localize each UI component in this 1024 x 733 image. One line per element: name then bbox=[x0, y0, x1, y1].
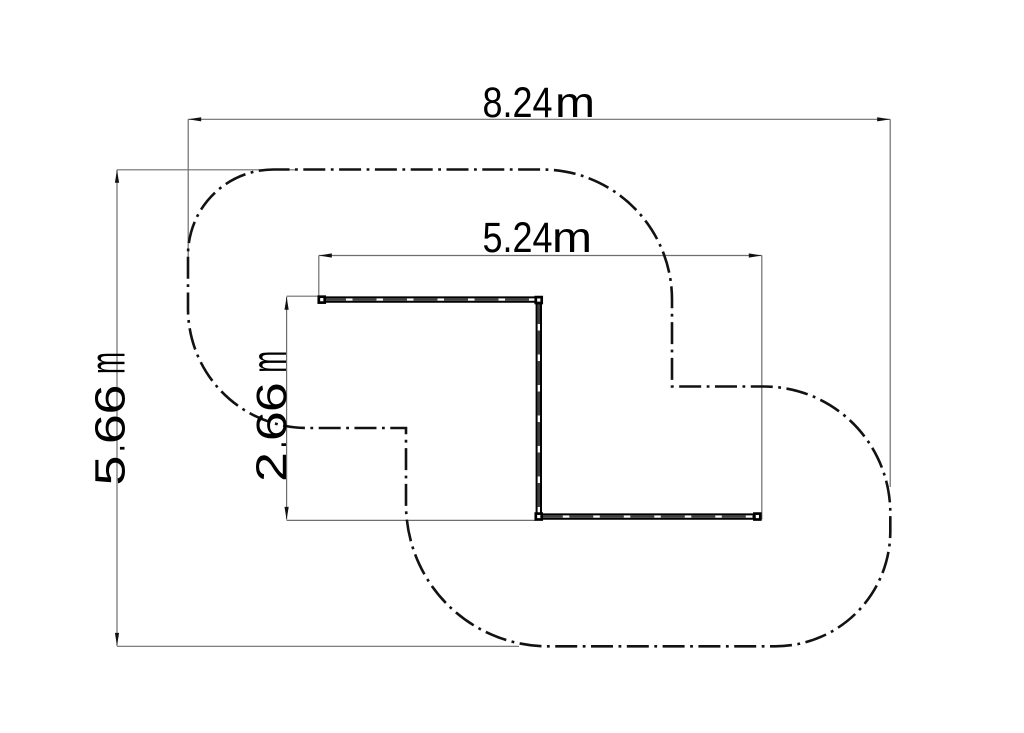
svg-text:5: 5 bbox=[87, 456, 134, 486]
svg-text:m: m bbox=[79, 352, 135, 374]
svg-text:.: . bbox=[87, 444, 134, 452]
svg-text:8.24: 8.24 bbox=[483, 80, 553, 127]
svg-text:m: m bbox=[552, 215, 592, 262]
svg-text:6: 6 bbox=[249, 411, 296, 441]
svg-text:6: 6 bbox=[249, 382, 296, 412]
svg-text:m: m bbox=[241, 351, 297, 373]
svg-text:m: m bbox=[555, 80, 595, 127]
svg-text:6: 6 bbox=[87, 414, 134, 444]
svg-text:2: 2 bbox=[249, 452, 296, 482]
svg-text:6: 6 bbox=[87, 385, 134, 415]
svg-text:5.24: 5.24 bbox=[483, 215, 553, 262]
